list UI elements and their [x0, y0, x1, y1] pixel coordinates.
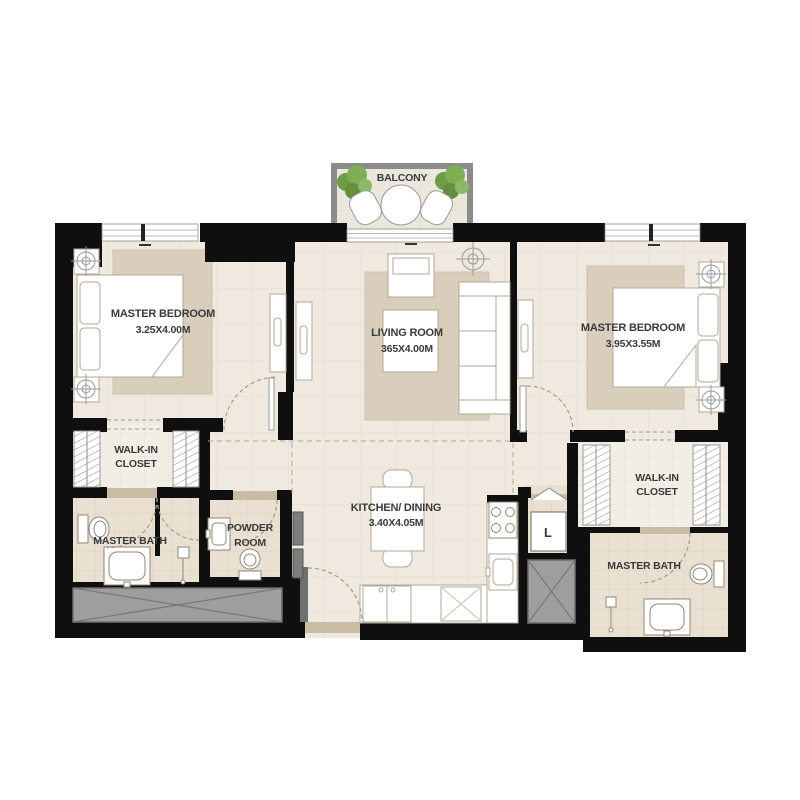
service-shaft [528, 560, 575, 623]
bathtub-icon [104, 547, 150, 587]
wall [360, 623, 583, 640]
walk-in-closet-right-label-line1: WALK-IN [635, 472, 679, 484]
coffee-table-icon [383, 310, 438, 372]
dining-chair-icon [383, 470, 412, 489]
dishwasher-icon [441, 587, 481, 621]
door-leaf [269, 378, 274, 430]
master-bedroom-right-label: MASTER BEDROOM [581, 322, 685, 334]
walk-in-closet-left-label-line2: CLOSET [115, 458, 157, 470]
closet-rail-icon [173, 431, 199, 487]
wall [280, 490, 292, 582]
balcony-rail-right [467, 163, 473, 225]
floor-plan-page: BALCONY MASTER BEDROOM 3.25X4.00M LIVING… [0, 0, 800, 800]
wall [567, 443, 578, 556]
kitchen-dining-dimensions: 3.40X4.05M [369, 517, 424, 529]
master-bedroom-left-dimensions: 3.25X4.00M [136, 324, 191, 336]
wardrobe-icon [296, 302, 312, 380]
wall [73, 418, 107, 432]
fridge-icon [363, 586, 411, 622]
wall [205, 223, 295, 262]
tv-console-icon [388, 254, 434, 297]
wardrobe-icon [270, 294, 286, 372]
balcony-door [347, 229, 453, 244]
wall [583, 637, 746, 652]
closet-rail-icon [693, 445, 720, 525]
closet-rail-icon [583, 445, 610, 525]
walk-in-closet-right-label-line2: CLOSET [636, 486, 678, 498]
wall [675, 430, 746, 442]
door-threshold [107, 488, 157, 498]
wall [55, 622, 302, 638]
kitchen-sink-icon [486, 554, 517, 590]
balcony-table-icon [381, 185, 421, 225]
toilet-icon [239, 549, 261, 580]
door-threshold [640, 527, 690, 534]
wall [453, 223, 605, 242]
wall [690, 527, 731, 533]
closet-rail-icon [74, 431, 100, 487]
wall [210, 490, 233, 500]
floor-plan-drawing: BALCONY MASTER BEDROOM 3.25X4.00M LIVING… [0, 0, 800, 800]
stove-icon [489, 502, 517, 538]
walk-in-closet-left-label-line1: WALK-IN [114, 444, 158, 456]
wall [528, 553, 577, 560]
laundry-label: L [544, 525, 552, 540]
wall [578, 527, 640, 533]
wall [163, 418, 223, 432]
powder-room-label-line2: ROOM [234, 537, 266, 549]
service-shaft [73, 588, 282, 622]
master-bedroom-right-dimensions: 3.95X3.55M [606, 338, 661, 350]
cabinet-icon [293, 512, 303, 545]
sink-icon [644, 599, 690, 636]
sofa-icon [459, 282, 510, 414]
balcony-rail-left [331, 163, 337, 225]
living-room-label: LIVING ROOM [371, 327, 443, 339]
wall [570, 430, 625, 442]
door-leaf [520, 386, 526, 432]
entrance-threshold [305, 622, 360, 633]
wall [286, 258, 294, 392]
wardrobe-icon [518, 300, 533, 378]
wall [510, 242, 517, 432]
master-bath-left-label: MASTER BATH [93, 535, 166, 547]
kitchen-dining-label: KITCHEN/ DINING [351, 502, 442, 514]
master-bedroom-left-label: MASTER BEDROOM [111, 308, 215, 320]
wall [73, 487, 107, 498]
wall [157, 487, 199, 498]
wall [278, 392, 293, 440]
living-room-dimensions: 365X4.00M [381, 343, 433, 355]
wall [518, 487, 531, 498]
powder-room-label-line1: POWDER [227, 522, 274, 534]
balcony-label: BALCONY [377, 172, 428, 184]
wall [518, 495, 528, 623]
wall [577, 533, 590, 637]
wall [199, 418, 210, 582]
master-bath-right-label: MASTER BATH [607, 560, 680, 572]
door-threshold [233, 491, 277, 500]
cabinet-icon [293, 549, 303, 578]
wall [55, 223, 73, 638]
